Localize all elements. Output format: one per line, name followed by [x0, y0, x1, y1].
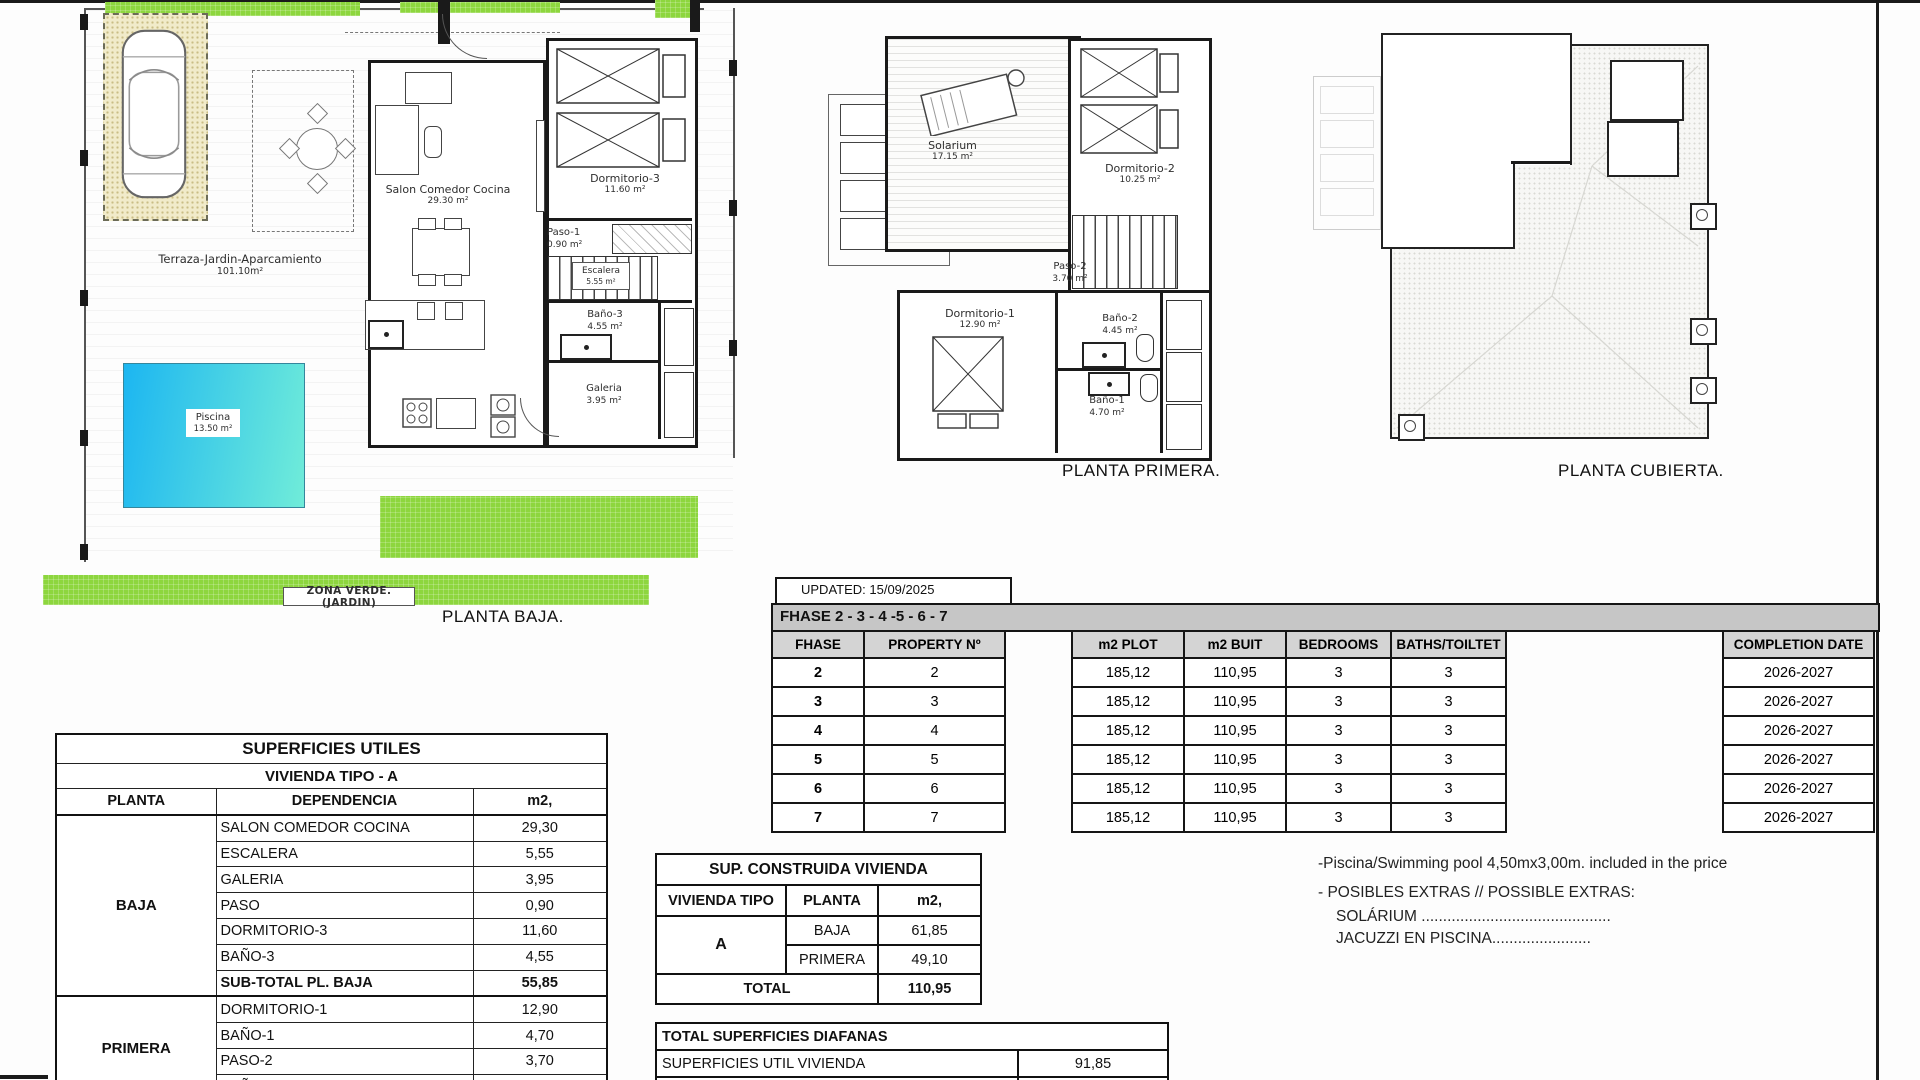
drain-icon [1690, 203, 1717, 230]
green-block-garden [380, 496, 698, 558]
table-title-row: TOTAL SUPERFICIES DIAFANAS [656, 1023, 1168, 1050]
phase-table-left: FHASE PROPERTY Nº 22 33 44 55 66 77 [771, 630, 1006, 833]
planta-primera-label: PRIMERA [56, 996, 216, 1080]
boundary-tick [80, 14, 88, 30]
cell: 110,95 [1184, 774, 1286, 803]
boundary-tick [80, 544, 88, 560]
cell: PRIMERA [786, 945, 878, 974]
updated-text: UPDATED: 15/09/2025 [801, 582, 934, 597]
roof-void-upper [1381, 33, 1572, 165]
cell: 4 [772, 716, 864, 745]
pergola-slat-faint [1320, 154, 1374, 182]
total-label: TOTAL [656, 974, 878, 1004]
cell: 4 [864, 716, 1005, 745]
cell: 185,12 [1072, 658, 1184, 687]
toilet-icon [1136, 334, 1154, 362]
col-dependencia: DEPENDENCIA [216, 789, 473, 815]
cell: 3 [1391, 774, 1506, 803]
header-row: m2 PLOT m2 BUIT BEDROOMS BATHS/TOILTET [1072, 631, 1506, 658]
total-value: 110,95 [878, 974, 981, 1004]
dining-table-icon [412, 228, 470, 276]
bed-icon [556, 112, 688, 168]
skylight [1607, 121, 1679, 177]
stove-icon [402, 398, 432, 428]
header-row: PLANTA DEPENDENCIA m2, [56, 789, 607, 815]
col-plot: m2 PLOT [1072, 631, 1184, 658]
cell: 3 [1391, 658, 1506, 687]
baja-west-boundary [84, 8, 86, 562]
cell: 29,30 [473, 815, 607, 841]
table-row: 185,12110,9533 [1072, 716, 1506, 745]
interior-wall [1055, 293, 1058, 453]
cell: 61,85 [878, 916, 981, 945]
table-row: PRIMERA DORMITORIO-1 12,90 [56, 996, 607, 1022]
cell: 2026-2027 [1723, 716, 1874, 745]
cell: 3 [1286, 658, 1391, 687]
cell: 3 [772, 687, 864, 716]
table-row: 185,12110,9533 [1072, 687, 1506, 716]
kitchen-module [417, 302, 435, 320]
interior-wall [1160, 293, 1163, 453]
washer-icon [490, 394, 516, 438]
sup-construida-table: SUP. CONSTRUIDA VIVIENDA VIVIENDA TIPO P… [655, 853, 982, 1005]
sink-icon [1082, 342, 1126, 368]
boundary-tick [729, 340, 737, 356]
cell: 12,90 [473, 996, 607, 1022]
chair-icon [418, 218, 436, 230]
pergola-slat-faint [1320, 188, 1374, 216]
bed-icon [1080, 104, 1180, 154]
green-strip-top [400, 2, 560, 13]
note-extras: - POSIBLES EXTRAS // POSSIBLE EXTRAS: [1318, 884, 1635, 902]
interior-wall [549, 300, 692, 303]
boundary-tick [80, 150, 88, 166]
cell: 3 [1286, 716, 1391, 745]
cell: 3 [1286, 687, 1391, 716]
floorplan-sheet: Salon Comedor Cocina 29.30 m² Dormitorio… [0, 0, 1920, 1080]
roof-void-step [1511, 161, 1571, 164]
armchair-icon [405, 72, 452, 104]
cell: 6 [864, 774, 1005, 803]
col-m2: m2, [473, 789, 607, 815]
cell: 5,55 [473, 841, 607, 867]
boundary-tick [80, 430, 88, 446]
cell: DORMITORIO-1 [216, 996, 473, 1022]
cell: 55,85 [473, 970, 607, 996]
cell: 2026-2027 [1723, 803, 1874, 832]
cell: 185,12 [1072, 687, 1184, 716]
cell: GALERIA [216, 867, 473, 893]
cell: 5 [864, 745, 1005, 774]
col-vivienda-tipo: VIVIENDA TIPO [656, 885, 786, 916]
table-title: SUPERFICIES UTILES [56, 734, 607, 764]
wardrobe [664, 308, 694, 366]
stairs [548, 256, 658, 300]
table-row: 185,12110,9533 [1072, 745, 1506, 774]
col-planta: PLANTA [786, 885, 878, 916]
cell: DORMITORIO-3 [216, 918, 473, 944]
stairs [1072, 215, 1178, 289]
phase-band: FHASE 2 - 3 - 4 -5 - 6 - 7 [771, 603, 1880, 632]
cell: 3 [1286, 803, 1391, 832]
cell: 5 [772, 745, 864, 774]
phase-band-text: FHASE 2 - 3 - 4 -5 - 6 - 7 [780, 608, 948, 625]
table-row: 185,12110,9533 [1072, 803, 1506, 832]
boundary-tick [729, 200, 737, 216]
note-jacuzzi: JACUZZI EN PISCINA......................… [1336, 930, 1591, 948]
cell: 110,95 [1184, 803, 1286, 832]
cell: 2 [864, 658, 1005, 687]
table-subtitle: VIVIENDA TIPO - A [56, 764, 607, 789]
pool [123, 363, 305, 508]
frame-bottom-line [0, 1075, 48, 1079]
cell: 11,60 [473, 918, 607, 944]
bed-icon [1080, 48, 1180, 98]
cell: BAÑO-2 [216, 1074, 473, 1080]
table-row: 185,12110,9533 [1072, 658, 1506, 687]
cell: 91,85 [1018, 1050, 1168, 1077]
cell: 3 [1286, 745, 1391, 774]
cell: 2026-2027 [1723, 687, 1874, 716]
cell: 110,95 [1184, 716, 1286, 745]
plan-title-cubierta: PLANTA CUBIERTA. [1558, 461, 1724, 481]
cell: 3 [1391, 803, 1506, 832]
cell: 110,95 [1184, 658, 1286, 687]
cell: SUPERFICIES UTIL VIVIENDA [656, 1050, 1018, 1077]
wall-tick [690, 0, 700, 32]
table-title-row: SUPERFICIES UTILES [56, 734, 607, 764]
table-row: BAJA SALON COMEDOR COCINA 29,30 [56, 815, 607, 841]
table-row: 2026-2027 [1723, 658, 1874, 687]
col-planta: PLANTA [56, 789, 216, 815]
table-row: 2026-2027 [1723, 716, 1874, 745]
cell: 2 [772, 658, 864, 687]
table-row: 2026-2027 [1723, 774, 1874, 803]
patio-table-icon [296, 128, 338, 170]
cell: 3 [1286, 774, 1391, 803]
cell: 7 [772, 803, 864, 832]
interior-wall [658, 303, 661, 439]
col-built: m2 BUIT [1184, 631, 1286, 658]
bed-icon [932, 336, 1004, 432]
cell: 2026-2027 [1723, 745, 1874, 774]
car-icon [115, 26, 193, 202]
plan-title-baja: PLANTA BAJA. [442, 607, 564, 627]
toilet-icon [1140, 374, 1158, 402]
drain-icon [1690, 377, 1717, 404]
cell: 7 [864, 803, 1005, 832]
col-fhase: FHASE [772, 631, 864, 658]
green-strip-bottom [43, 575, 649, 605]
sink-icon [368, 320, 404, 349]
wardrobe [1166, 300, 1202, 350]
side-table-icon [424, 126, 442, 158]
table-subtitle-row: VIVIENDA TIPO - A [56, 764, 607, 789]
sink-icon [560, 334, 612, 360]
drain-icon [1690, 318, 1717, 345]
drain-icon [1398, 414, 1425, 441]
sofa-icon [375, 105, 419, 175]
cell: 185,12 [1072, 745, 1184, 774]
chair-icon [444, 218, 462, 230]
cell: SALON COMEDOR COCINA [216, 815, 473, 841]
wardrobe [664, 372, 694, 438]
wardrobe [612, 224, 692, 254]
roof-void-lower [1381, 163, 1515, 249]
col-m2: m2, [878, 885, 981, 916]
chair-icon [418, 274, 436, 286]
wardrobe [1166, 352, 1202, 402]
interior-wall [549, 360, 661, 363]
header-row: VIVIENDA TIPO PLANTA m2, [656, 885, 981, 916]
total-row: TOTAL 110,95 [656, 974, 981, 1004]
tv-cabinet [536, 120, 545, 212]
interior-wall [1058, 368, 1160, 371]
cell: SUB-TOTAL PL. BAJA [216, 970, 473, 996]
planta-baja-label: BAJA [56, 815, 216, 997]
kitchen-module [445, 302, 463, 320]
table-row: 185,12110,9533 [1072, 774, 1506, 803]
header-row: FHASE PROPERTY Nº [772, 631, 1005, 658]
cell: 110,95 [1184, 745, 1286, 774]
cell: 3 [1391, 745, 1506, 774]
superficies-utiles-table: SUPERFICIES UTILES VIVIENDA TIPO - A PLA… [55, 733, 608, 1080]
header-row: COMPLETION DATE [1723, 631, 1874, 658]
cell: 110,95 [1184, 687, 1286, 716]
green-strip-top [655, 0, 693, 18]
wardrobe [1166, 404, 1202, 450]
cell: 4,55 [473, 944, 607, 970]
cell: BAJA [786, 916, 878, 945]
col-bedrooms: BEDROOMS [1286, 631, 1391, 658]
table-row: A BAJA 61,85 [656, 916, 981, 945]
table-row: 33 [772, 687, 1005, 716]
bed-icon [556, 48, 688, 104]
chair-icon [444, 274, 462, 286]
cell: 3 [864, 687, 1005, 716]
note-pool: -Piscina/Swimming pool 4,50mx3,00m. incl… [1318, 855, 1727, 873]
table-row: 66 [772, 774, 1005, 803]
table-row: 77 [772, 803, 1005, 832]
table-row: 2026-2027 [1723, 803, 1874, 832]
cell: 2026-2027 [1723, 658, 1874, 687]
interior-wall [549, 218, 692, 221]
pergola-slat-faint [1320, 120, 1374, 148]
cell: ESCALERA [216, 841, 473, 867]
table-title: SUP. CONSTRUIDA VIVIENDA [656, 854, 981, 885]
cell: 4,70 [473, 1023, 607, 1049]
table-row: 44 [772, 716, 1005, 745]
tipo-label: A [656, 916, 786, 974]
cell: PASO-2 [216, 1048, 473, 1074]
table-row: 22 [772, 658, 1005, 687]
cell: 6 [772, 774, 864, 803]
table-row: 2026-2027 [1723, 687, 1874, 716]
table-row: SUPERFICIES UTIL VIVIENDA 91,85 [656, 1050, 1168, 1077]
cell: BAÑO-3 [216, 944, 473, 970]
cell: 2026-2027 [1723, 774, 1874, 803]
cell: 3 [1391, 716, 1506, 745]
cell: 0,90 [473, 893, 607, 919]
phase-table-right: COMPLETION DATE 2026-2027 2026-2027 2026… [1722, 630, 1875, 833]
kitchen-cabinet [436, 398, 476, 429]
cell: 185,12 [1072, 774, 1184, 803]
cell: BAÑO-1 [216, 1023, 473, 1049]
cell: 3,95 [473, 867, 607, 893]
cell: 185,12 [1072, 716, 1184, 745]
cell: 185,12 [1072, 803, 1184, 832]
cell: 3 [1391, 687, 1506, 716]
cell: 49,10 [878, 945, 981, 974]
note-solarium: SOLÁRIUM ...............................… [1336, 908, 1611, 926]
boundary-tick [729, 60, 737, 76]
sunbed-icon [920, 66, 1030, 136]
diafanas-table: TOTAL SUPERFICIES DIAFANAS SUPERFICIES U… [655, 1022, 1169, 1080]
col-completion: COMPLETION DATE [1723, 631, 1874, 658]
table-row: 2026-2027 [1723, 745, 1874, 774]
cell: 4,45 [473, 1074, 607, 1080]
cell: PASO [216, 893, 473, 919]
cell: 3,70 [473, 1048, 607, 1074]
skylight [1610, 60, 1684, 121]
col-property: PROPERTY Nº [864, 631, 1005, 658]
table-row: 55 [772, 745, 1005, 774]
plan-title-primera: PLANTA PRIMERA. [1062, 461, 1220, 481]
col-baths: BATHS/TOILTET [1391, 631, 1506, 658]
boundary-tick [80, 290, 88, 306]
frame-right-line [1876, 0, 1879, 1080]
pergola-slat-faint [1320, 86, 1374, 114]
table-title: TOTAL SUPERFICIES DIAFANAS [656, 1023, 1168, 1050]
phase-table-mid: m2 PLOT m2 BUIT BEDROOMS BATHS/TOILTET 1… [1071, 630, 1507, 833]
sink-icon [1088, 372, 1130, 396]
table-title-row: SUP. CONSTRUIDA VIVIENDA [656, 854, 981, 885]
